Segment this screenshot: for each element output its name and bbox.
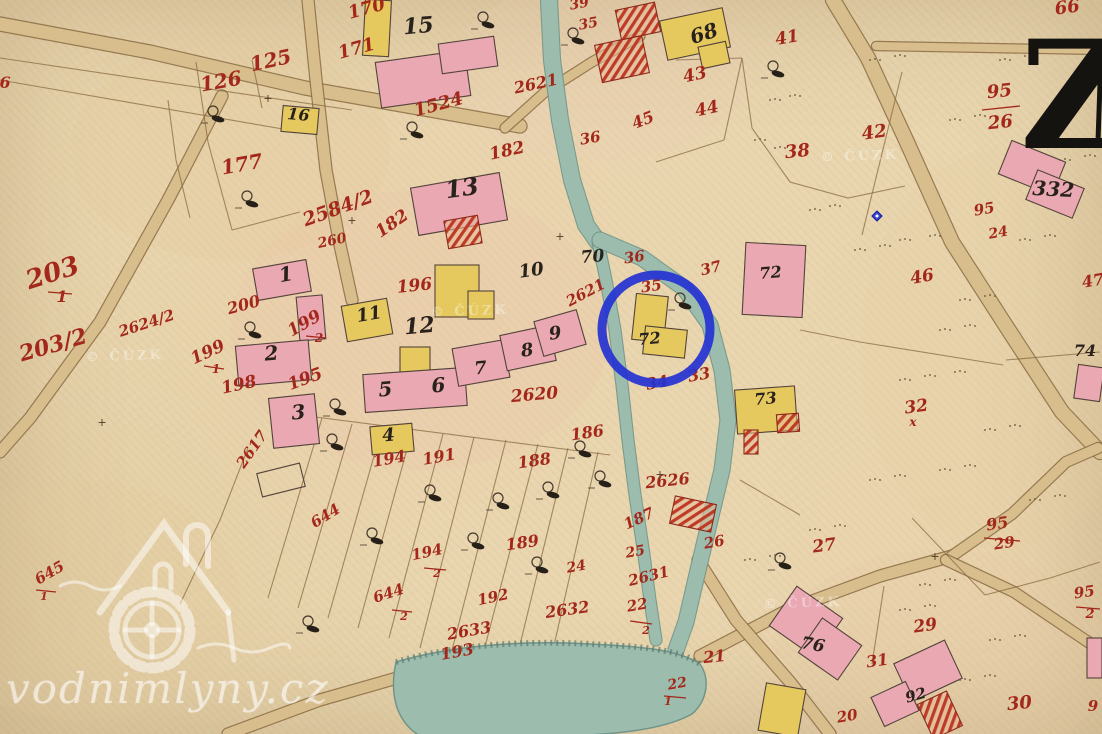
parcel-number: 24 [564,557,587,576]
house-number: 2 [262,340,279,365]
meadow-dots-symbol [854,248,866,251]
survey-cross-mark: + [555,230,564,243]
red-x-mark: x [908,415,917,429]
parcel-number: 2624/2 [115,306,176,341]
parcel-number: 644 [307,500,343,532]
water-wave-right [198,644,290,652]
tree-symbol [536,482,560,500]
parcel-number: 644 [371,580,406,607]
parcel-number: 36 [578,127,602,148]
parcel-number: 36 [623,247,647,268]
meadow-dots-symbol [829,204,841,207]
parcel-number: 1 [40,590,48,603]
house-number: 3 [290,399,306,424]
wooden-building [776,413,799,432]
water-wave-left [60,582,120,590]
house-number: 72 [638,328,662,349]
house-number: 7 [473,357,488,379]
parcel-number: 189 [504,531,540,554]
parcel-number: 29 [911,614,938,637]
mill-window [155,564,171,588]
parcel-number: 95 [985,513,1010,535]
house-number: 72 [759,262,783,283]
parcel-number: 2626 [643,469,690,493]
parcel-number: 38 [784,140,812,164]
meadow-dots-symbol [999,58,1011,61]
survey-cross-mark: + [655,468,664,481]
meadow-dots-symbol [809,528,821,531]
parcel-number: 2620 [509,383,559,407]
meadow-dots-symbol [974,114,986,117]
parcel-number: 47 [1080,269,1102,292]
parcel-number: 22 [624,594,649,616]
fraction-bar [982,106,1020,110]
parcel-number: 9 [1088,697,1099,715]
parcel-number: 21 [701,646,726,667]
house-number: 74 [1074,341,1096,360]
parcel-number: 95 [1073,582,1096,603]
meadow-dots-symbol [809,208,821,211]
parcel-boundary [516,448,568,661]
tree-symbol [360,528,384,546]
parcel-number: 186 [569,421,605,444]
parcel-number: 188 [516,449,552,472]
house-number: 13 [443,171,480,204]
wooden-building [744,430,758,454]
house-number: 10 [517,258,545,282]
parcel-number: 1 [56,287,67,306]
tree-symbol [525,557,549,575]
house-number: 5 [377,376,393,401]
cuzk-watermark: © ČÚZK [821,146,900,166]
parcel-boundary [740,480,800,515]
poi-diamond-center [876,215,879,218]
parcel-number: 20 [834,705,859,727]
house-number: 15 [402,12,435,41]
map-sheet-title-letter: Z [1020,8,1102,184]
parcel-number: 171 [336,34,378,64]
parcel-number: 26 [986,111,1015,135]
meadow-dots-symbol [754,138,766,141]
survey-cross-mark: + [930,550,939,563]
cuzk-watermark: © ČÚZK [764,593,843,613]
meadow-dots-symbol [894,54,906,57]
house-number: 73 [754,388,778,409]
parcel-number: 1 [212,362,220,376]
parcel-number: 2 [1084,607,1094,622]
site-watermark-text: vodnimlyny.cz [6,664,330,713]
parcel-number: 203 [21,251,83,297]
survey-cross-mark: + [347,214,356,227]
house-number: 76 [799,633,826,657]
parcel-number: 95 [986,80,1013,104]
parcel-number: 46 [909,265,936,289]
house-number: 4 [381,425,395,447]
parcel-number: 35 [577,14,599,33]
house-number: 16 [287,104,311,125]
meadow-dots-symbol [949,118,961,121]
parcel-boundary [550,452,598,663]
building [1087,638,1102,678]
parcel-number: 194 [410,540,444,564]
cuzk-watermark: © ČÚZK [86,346,165,366]
parcel-number: 6 [0,73,11,92]
tree-symbol [400,122,424,140]
house-number: 6 [430,372,446,397]
meadow-dots-symbol [789,94,801,97]
meadow-dots-symbol [769,98,781,101]
parcel-number: 95 [972,198,996,219]
parcel-number: 30 [1006,692,1034,716]
meadow-dots-symbol [744,558,756,561]
parcel-number: 26 [701,531,726,553]
meadow-dots-symbol [869,478,881,481]
parcel-number: 27 [810,534,837,557]
poi-diamond-marker[interactable] [872,211,882,221]
parcel-number: 192 [476,585,510,609]
parcel-number: 41 [774,26,801,50]
parcel-number: 196 [396,274,434,298]
building [758,683,806,734]
parcel-number: 2 [641,624,650,637]
parcel-number: 2633 [444,617,492,644]
house-number: 70 [580,246,605,268]
building [257,463,305,497]
parcel-number: 42 [860,120,888,144]
survey-cross-mark: + [97,416,106,429]
parcel-number: 37 [698,257,723,280]
building [1074,364,1102,401]
tree-symbol [418,485,442,503]
wooden-building [444,215,482,248]
parcel-boundary [800,330,860,342]
tree-symbol [761,61,785,79]
meadow-dots-symbol [834,524,846,527]
parcel-number: 199 [188,336,229,369]
parcel-number: 2632 [543,597,591,622]
parcel-number: 182 [488,138,527,165]
parcel-number: 29 [992,533,1017,554]
mill-wall [228,612,234,660]
house-number: 11 [355,302,383,327]
parcel-number: 2617 [232,426,272,472]
cadastral-map-viewport[interactable]: 612612517717017115241821822584/226020312… [0,0,1102,734]
survey-cross-mark: + [263,92,272,105]
parcel-number: 31 [865,650,890,672]
